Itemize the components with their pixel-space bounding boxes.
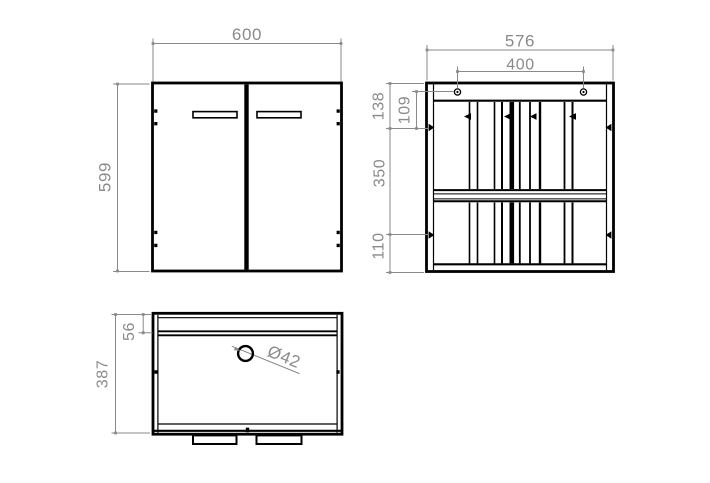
front-dimensions: 600 599: [96, 25, 343, 272]
dim-back-width: 576: [505, 32, 535, 51]
handle-right-top-view: [257, 435, 302, 444]
door-handle-left: [193, 112, 237, 118]
slat-lines-mid: [520, 102, 565, 263]
dim-back-hole-to-cam: 109: [397, 96, 414, 125]
top-view-marks: [154, 370, 339, 432]
door-divider: [244, 85, 248, 270]
back-rail-edges-top-view: [158, 331, 337, 335]
front-dimension-ticks: [116, 42, 342, 272]
back-panel-slats: [470, 102, 573, 263]
back-view: 576 400 138 109 350 110: [371, 32, 615, 274]
drawing-page: 600 599 576 400 1: [0, 0, 710, 483]
dim-top-depth: 387: [95, 360, 112, 389]
top-view: 387 56 Ø42: [95, 313, 343, 444]
technical-drawing-canvas: 600 599 576 400 1: [0, 0, 710, 483]
door-handle-right: [257, 112, 301, 118]
dim-back-bottom-to-cam: 110: [371, 232, 388, 259]
dim-back-hole-span: 400: [506, 57, 535, 74]
front-dimension-lines: [113, 39, 341, 272]
dim-top-rail-depth: 56: [121, 322, 138, 341]
dim-back-top-to-cam: 138: [371, 92, 388, 121]
front-view: 600 599: [96, 25, 343, 272]
handle-left-top-view: [193, 435, 237, 444]
back-dimension-lines: [386, 45, 613, 273]
back-dimensions: 576 400 138 109 350 110: [371, 32, 615, 274]
dim-front-width: 600: [232, 25, 262, 44]
top-inner-edges: [158, 315, 337, 433]
dim-back-cam-span: 350: [372, 159, 389, 188]
slat-lines-thin: [470, 102, 495, 263]
hanging-hole-right-center: [582, 91, 584, 93]
hanging-hole-left-center: [456, 91, 458, 93]
dim-front-height: 599: [96, 162, 115, 192]
